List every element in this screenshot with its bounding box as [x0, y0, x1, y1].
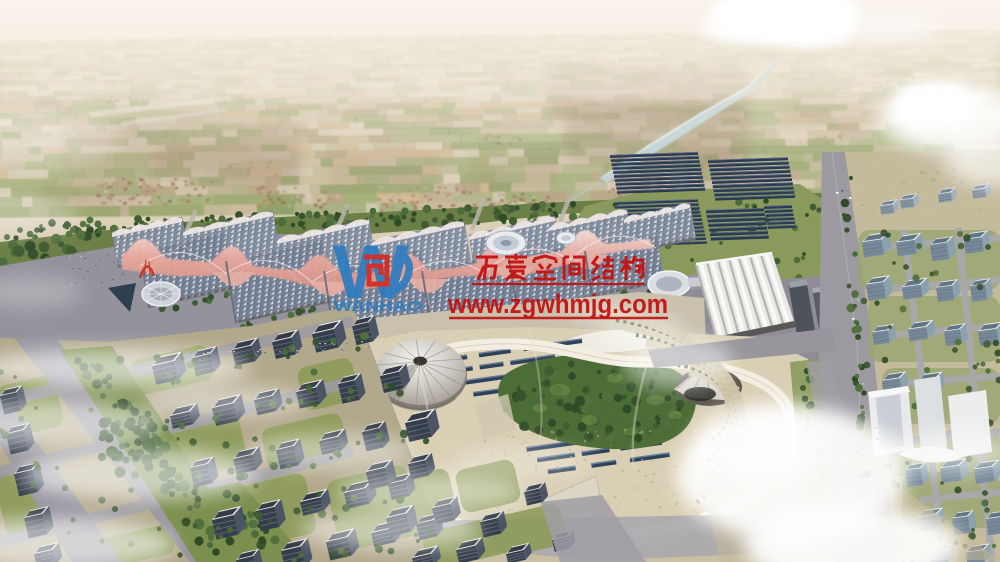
svg-text:www.zgwhmjg.com: www.zgwhmjg.com [447, 289, 668, 319]
svg-text:WANHAO: WANHAO [334, 298, 422, 315]
